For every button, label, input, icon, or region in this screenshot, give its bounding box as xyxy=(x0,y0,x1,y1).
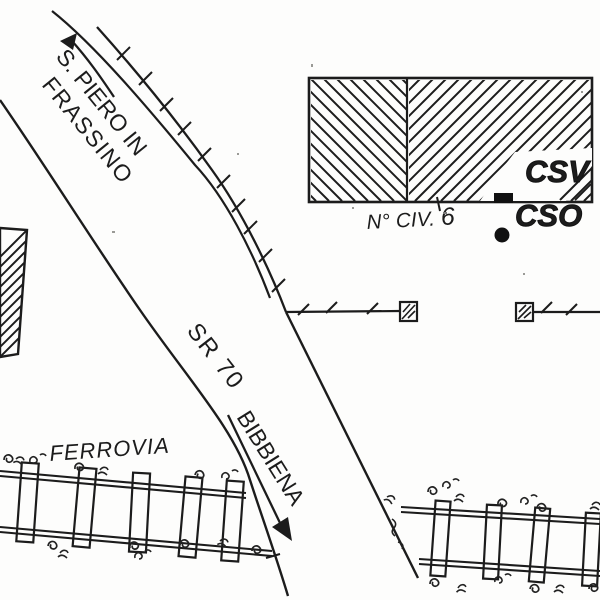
svg-text:CSO: CSO xyxy=(515,198,582,233)
svg-text:CSV: CSV xyxy=(525,154,591,189)
